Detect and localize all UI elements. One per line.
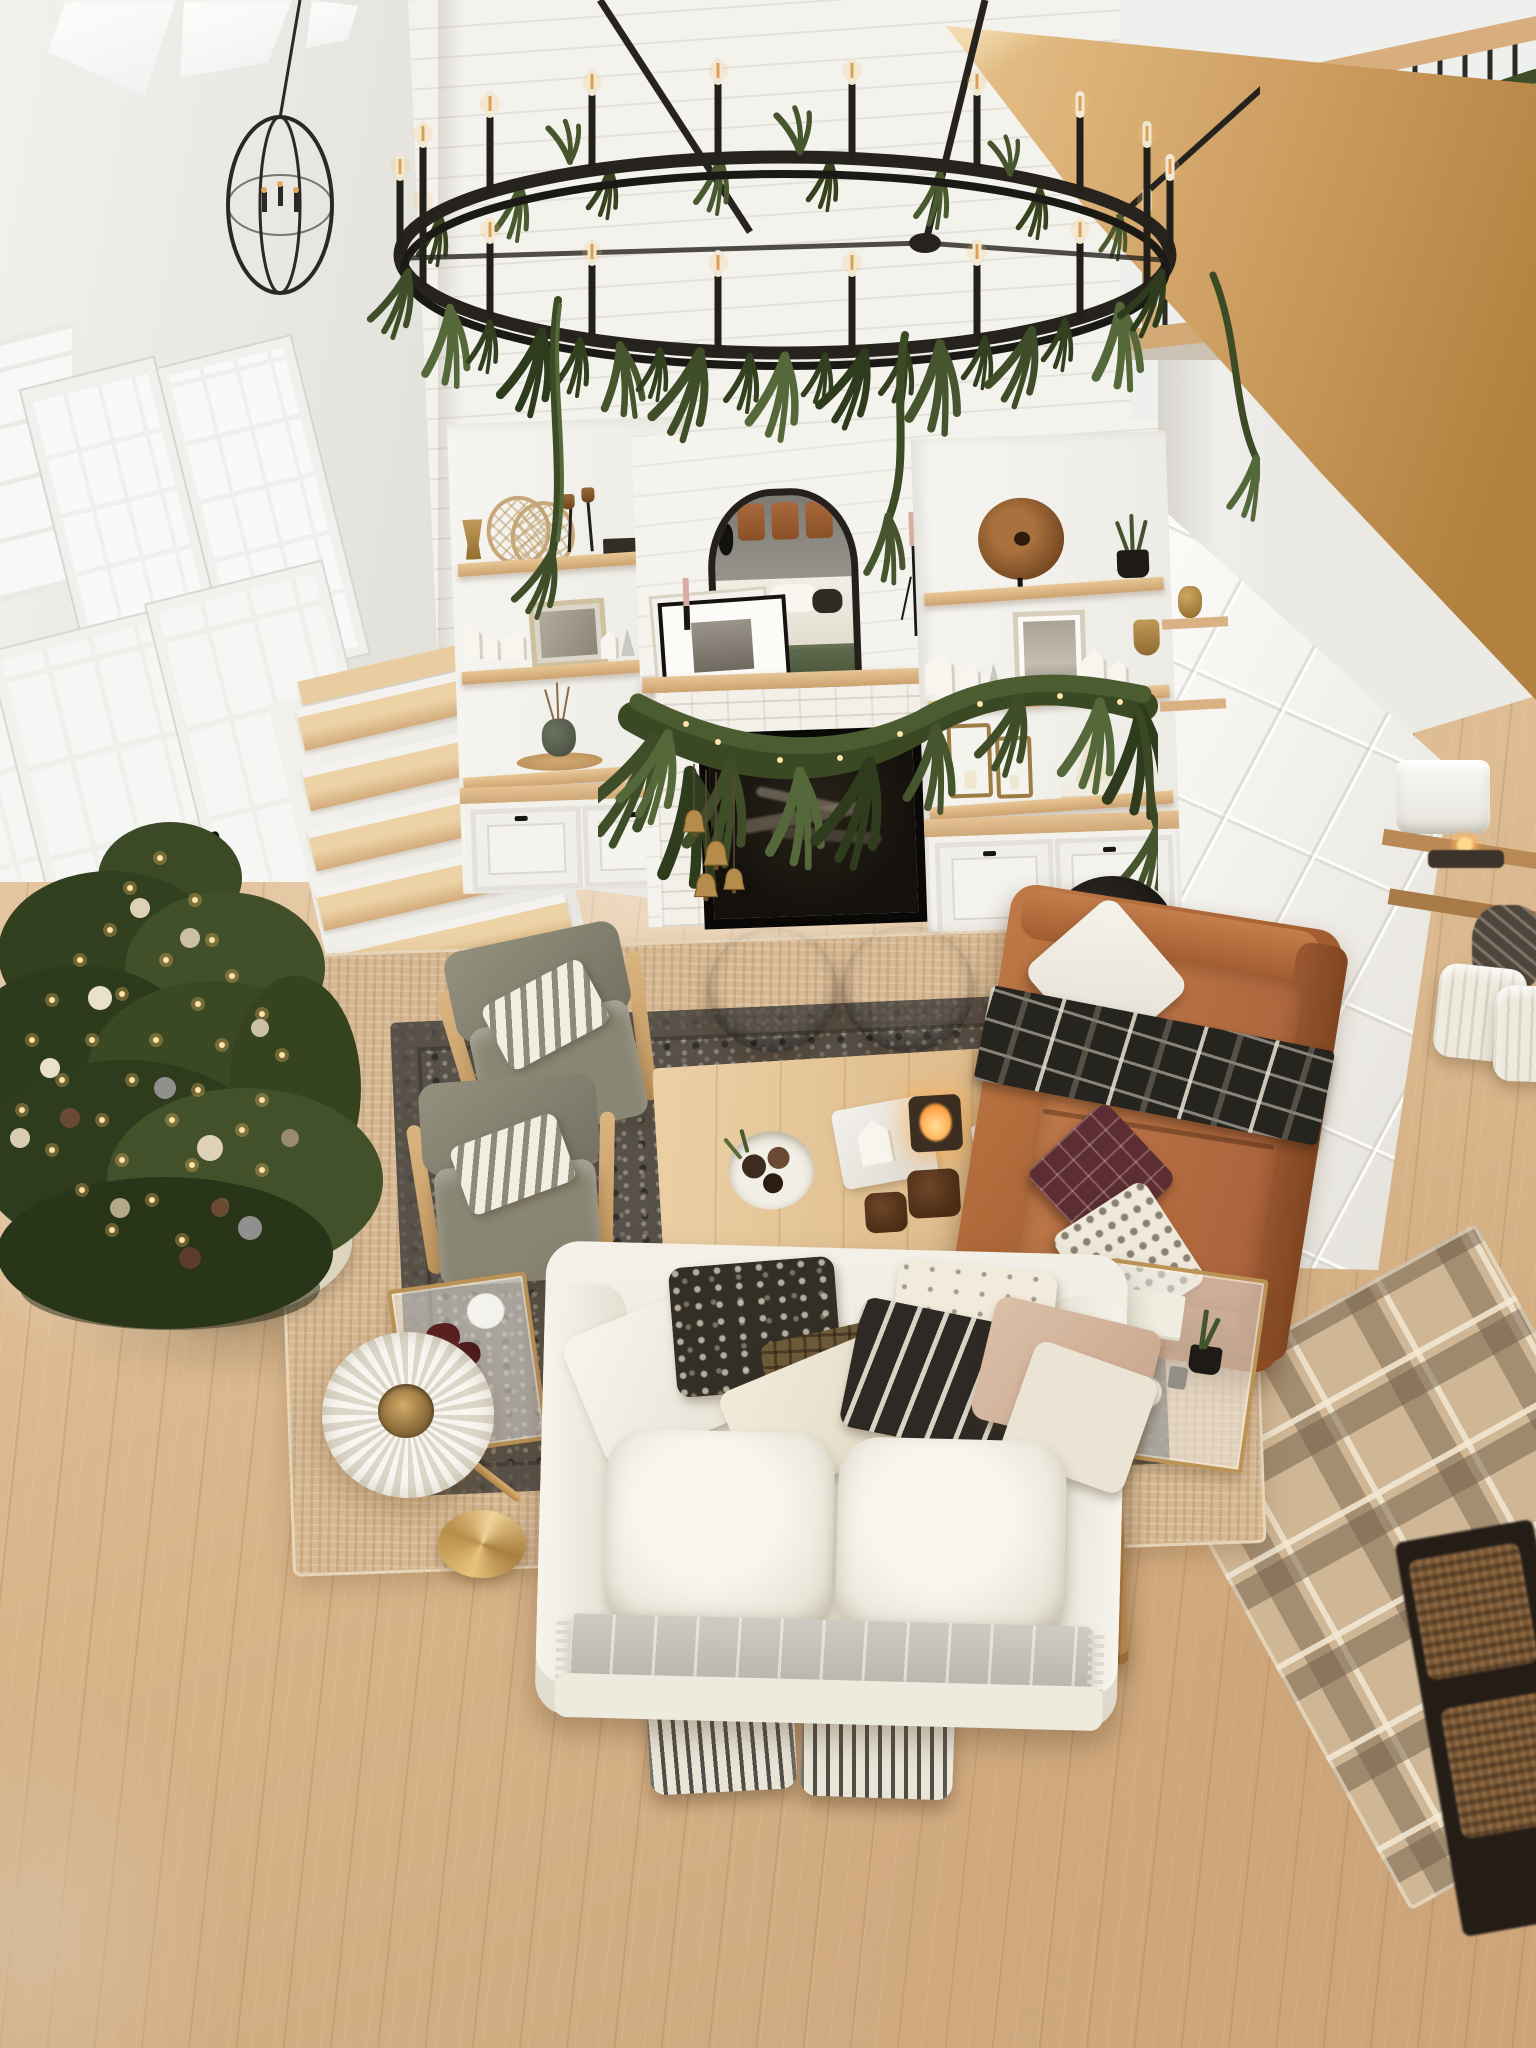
stone-vase	[541, 718, 576, 757]
lamp-pole	[472, 1461, 523, 1503]
ring-chandelier	[320, 0, 1260, 640]
shade-opening	[378, 1384, 434, 1438]
ornament	[762, 1173, 783, 1194]
entry-lamp	[1396, 760, 1490, 834]
lit-candle-holder	[908, 1094, 963, 1153]
white-slipcover-sofa	[533, 1240, 1136, 1760]
seat-cushion	[835, 1436, 1068, 1640]
white-coaster	[464, 1291, 507, 1332]
woven-basket	[1408, 1542, 1536, 1682]
christmas-tree	[0, 788, 420, 1348]
velvet-pumpkin	[864, 1191, 908, 1233]
blanket-fringe	[555, 1617, 573, 1679]
entry-tray	[1428, 850, 1504, 868]
white-pouf-basket	[1492, 985, 1536, 1084]
brass-lamp-base	[438, 1510, 526, 1578]
blanket-fringe	[1087, 1631, 1105, 1693]
seat-cushion	[603, 1428, 836, 1632]
ornament	[741, 1154, 766, 1179]
woven-basket	[1440, 1691, 1536, 1839]
cabinet-pull	[515, 816, 528, 821]
brown-pouf	[708, 928, 838, 1052]
great-room-photo: Aerial view from a second-floor loft of …	[0, 0, 1536, 2048]
white-house-decor	[855, 1117, 896, 1166]
ornament	[767, 1146, 790, 1169]
candle-flame	[919, 1102, 953, 1142]
pleated-floor-lamp	[318, 1328, 578, 1563]
brown-pouf	[842, 926, 974, 1052]
